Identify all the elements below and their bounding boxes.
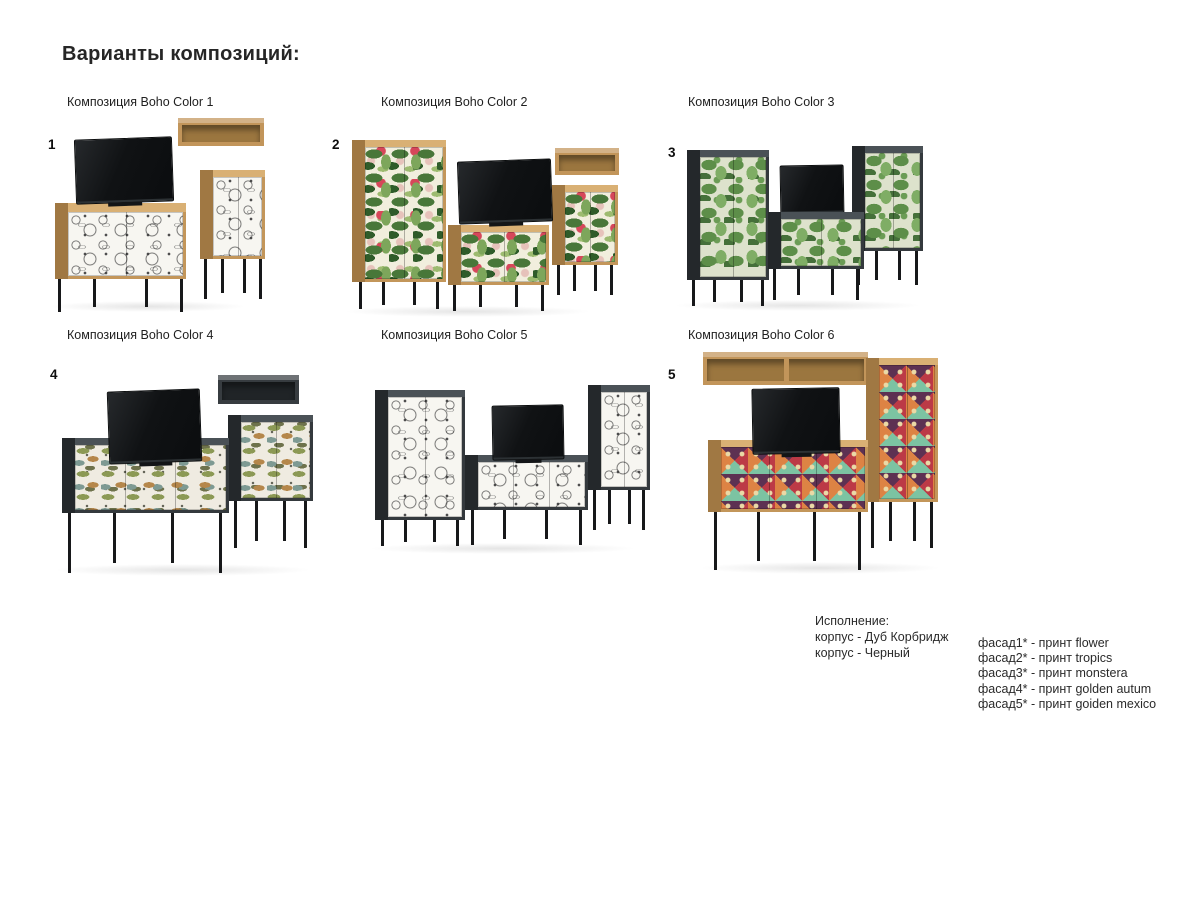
cabinet-side [552,185,565,265]
sideboard-side [55,203,68,279]
composition-3-label: Композиция Boho Color 3 [688,95,834,109]
leg [594,265,597,291]
leg [304,501,307,548]
sideboard-side [465,455,478,510]
composition-2-label: Композиция Boho Color 2 [381,95,527,109]
leg [813,512,816,561]
leg [557,265,560,295]
leg [255,501,258,541]
leg [692,280,695,306]
cabinet-top [352,140,446,147]
sideboard-facade-monstera-print [781,219,861,266]
leg [714,512,717,570]
facade-legend: фасад1* - принт flower фасад2* - принт t… [978,636,1156,712]
leg [797,269,800,295]
leg [243,259,246,293]
cabinet-legs [691,280,765,306]
leg [145,279,148,307]
cabinet-legs [870,502,934,548]
finish-legend: Исполнение: корпус - Дуб Корбридж корпус… [815,613,948,661]
catalog-page: { "page": { "title": "Варианты композици… [0,0,1201,901]
tall-cabinet [866,358,938,502]
sideboard-facade-flower-print [68,212,183,276]
sideboard-top [768,212,864,219]
shelf-interior [559,155,615,171]
leg [858,512,861,570]
leg [359,282,362,309]
leg [871,502,874,548]
cabinet-facade-monstera-print [700,157,766,277]
display-cabinet [228,415,313,501]
cabinet-side [588,385,601,490]
display-cabinet [200,170,265,259]
leg [503,510,506,539]
leg [628,490,631,524]
cabinet-facade-monstera-print [865,153,920,248]
leg [831,269,834,295]
cabinet-facade-tropics-print [565,192,615,262]
leg [456,520,459,546]
sideboard-side [62,438,75,513]
leg [713,280,716,302]
tv [780,164,845,214]
composition-5-scene [360,383,652,563]
composition-6-number: 5 [668,367,676,382]
tv [74,136,174,204]
leg [382,282,385,305]
facade-option: фасад5* - принт goiden mexico [978,697,1156,712]
page-title: Варианты композиций: [62,43,300,66]
tall-cabinet [352,140,446,282]
leg [68,513,71,573]
cabinet-facade-flower-print [213,177,262,256]
cabinet-facade-tropics-print [365,147,443,279]
sideboard-facade-flower-print [478,462,585,507]
cabinet-side [687,150,700,280]
leg [573,265,576,291]
leg [541,285,544,311]
tv [107,388,202,464]
corpus-option: корпус - Черный [815,645,948,661]
leg [93,279,96,307]
leg [608,490,611,524]
tall-cabinet-left [687,150,769,280]
composition-6-scene: 5 [660,348,958,576]
leg [471,510,474,545]
leg [930,502,933,548]
cabinet-legs [856,251,919,285]
cabinet-legs [203,259,263,299]
composition-4-label: Композиция Boho Color 4 [67,328,213,342]
leg [593,490,596,530]
leg [579,510,582,545]
leg [889,502,892,541]
leg [898,251,901,280]
leg [913,502,916,541]
leg [180,279,183,312]
leg [773,269,776,300]
composition-3-scene: 3 [665,140,940,320]
sideboard [55,203,186,279]
sideboard-legs [67,513,224,573]
facade-option: фасад2* - принт tropics [978,651,1156,666]
corpus-option: корпус - Дуб Корбридж [815,629,948,645]
sideboard-side [448,225,461,285]
small-cabinet [552,185,618,265]
composition-3-number: 3 [668,145,676,160]
leg [204,259,207,299]
leg [219,513,222,573]
leg [283,501,286,541]
facade-option: фасад1* - принт flower [978,636,1156,651]
sideboard-facade-tropics-print [461,232,546,282]
tv [751,387,840,455]
shelf-interior [182,125,260,142]
cabinet-legs [358,282,440,309]
cabinet-side [228,415,241,501]
sideboard-legs [470,510,583,545]
sideboard-side [708,440,721,512]
leg [221,259,224,293]
cabinet-facade-goiden-mexico-print [879,365,935,499]
leg [259,259,262,299]
cabinet-side [200,170,213,259]
sideboard-legs [57,279,184,312]
composition-1-number: 1 [48,137,56,152]
leg [875,251,878,280]
leg [515,285,518,307]
cabinet-facade-flower-print [601,392,647,487]
shelf-divider [784,359,789,381]
leg [234,501,237,548]
cabinet-legs [380,520,460,546]
leg [545,510,548,539]
leg [642,490,645,530]
cabinet-facade-flower-print [388,397,462,517]
sideboard-legs [452,285,545,311]
leg [453,285,456,311]
leg [740,280,743,302]
facade-option: фасад3* - принт monstera [978,666,1156,681]
cabinet-legs [592,490,646,530]
tv [492,404,565,460]
leg [58,279,61,312]
leg [113,513,116,563]
tall-cabinet-left [375,390,465,520]
sideboard-side [768,212,781,269]
leg [433,520,436,542]
composition-1-scene: 1 [45,113,275,315]
leg [856,269,859,300]
composition-1-label: Композиция Boho Color 1 [67,95,213,109]
sideboard [465,455,588,510]
composition-4-scene: 4 [45,358,335,577]
leg [381,520,384,546]
leg [171,513,174,563]
leg [436,282,439,309]
leg [413,282,416,305]
cabinet-top [375,390,465,397]
wall-shelf [218,375,299,404]
sideboard [768,212,864,269]
sideboard-legs [772,269,860,300]
legend-title: Исполнение: [815,613,948,629]
composition-2-scene: 2 [330,128,622,320]
composition-5-label: Композиция Boho Color 5 [381,328,527,342]
cabinet-side [375,390,388,520]
leg [915,251,918,285]
composition-4-number: 4 [50,367,58,382]
tv [457,158,553,224]
tall-cabinet-right [588,385,650,490]
leg [479,285,482,307]
wall-shelf-long [703,352,868,385]
cabinet-side [352,140,365,282]
leg [761,280,764,306]
cabinet-facade-golden-autum-print [241,422,310,498]
shelf-interior [222,382,295,400]
wall-shelf [178,118,264,146]
facade-option: фасад4* - принт golden autum [978,682,1156,697]
sideboard [448,225,549,285]
leg [404,520,407,542]
cabinet-legs [556,265,614,295]
leg [610,265,613,295]
cabinet-legs [233,501,308,548]
leg [757,512,760,561]
composition-2-number: 2 [332,137,340,152]
composition-6-label: Композиция Boho Color 6 [688,328,834,342]
sideboard-legs [713,512,863,570]
wall-shelf [555,148,619,175]
